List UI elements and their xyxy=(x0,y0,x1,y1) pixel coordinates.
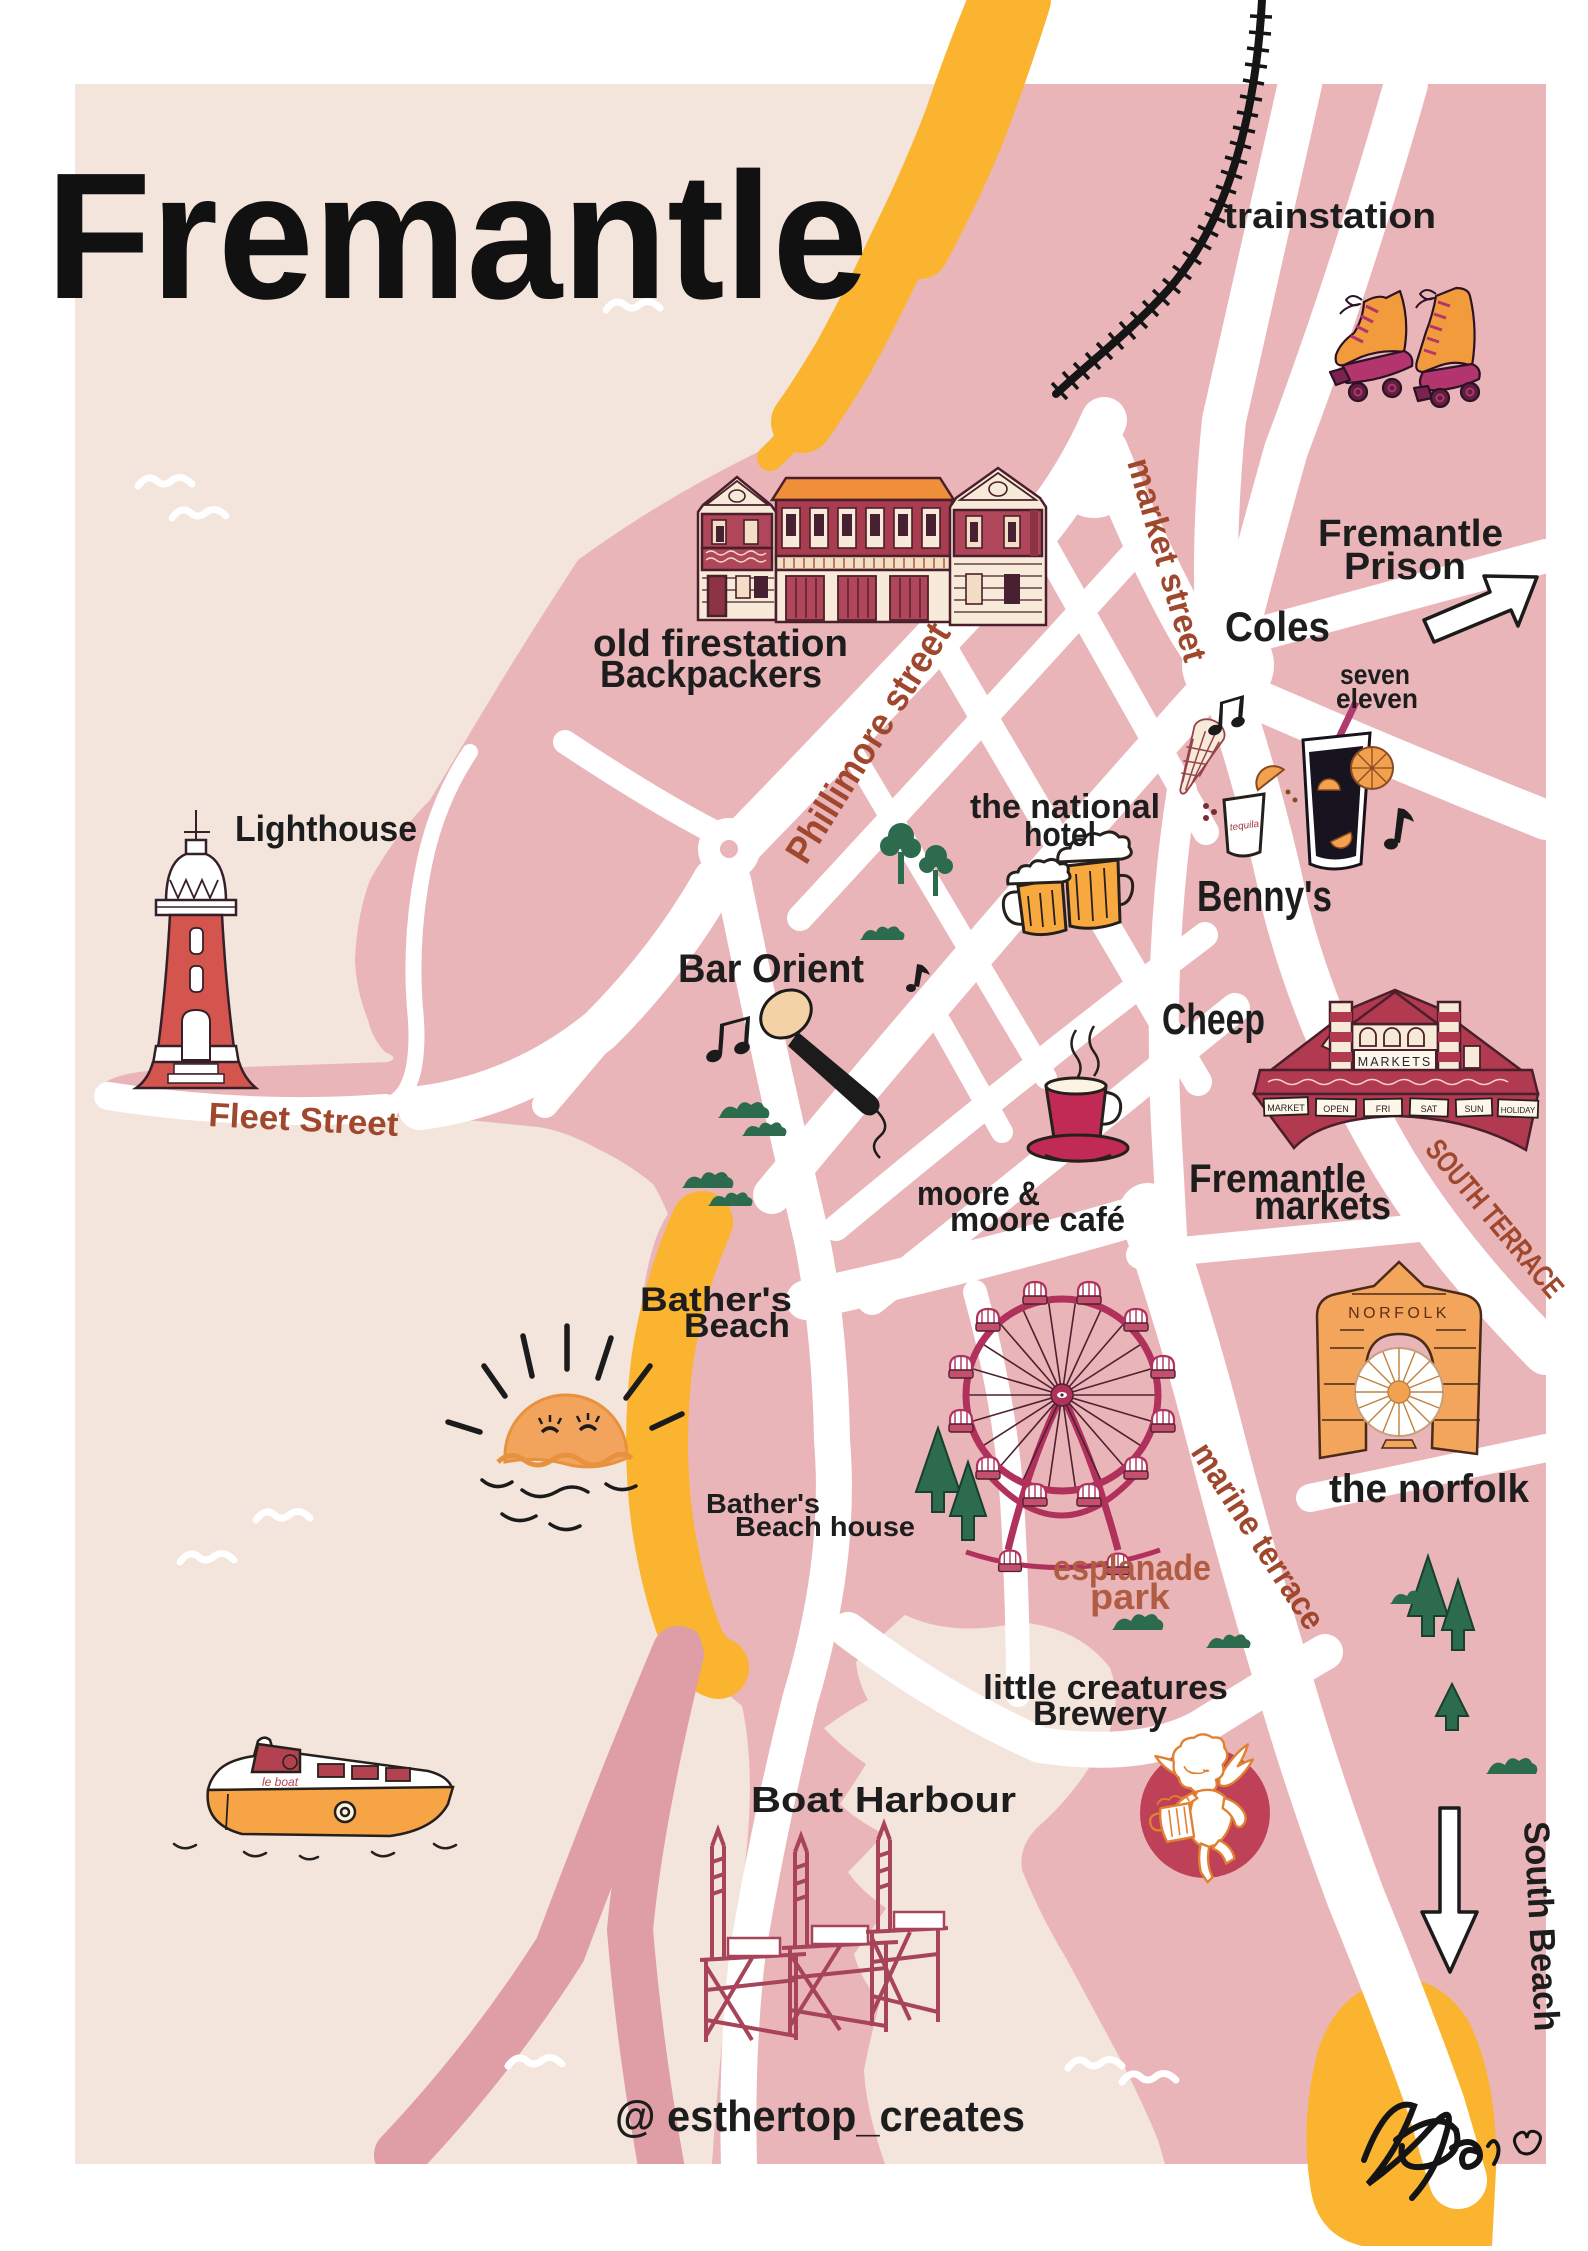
svg-text:Beach: Beach xyxy=(684,1307,790,1345)
svg-text:Lighthouse: Lighthouse xyxy=(235,808,417,849)
svg-text:NORFOLK: NORFOLK xyxy=(1348,1305,1450,1322)
svg-text:Coles: Coles xyxy=(1225,603,1330,650)
svg-text:Boat Harbour: Boat Harbour xyxy=(751,1779,1016,1820)
svg-text:OPEN: OPEN xyxy=(1323,1104,1349,1114)
svg-text:markets: markets xyxy=(1254,1184,1391,1228)
svg-text:Benny's: Benny's xyxy=(1197,872,1332,921)
svg-text:Cheep: Cheep xyxy=(1162,995,1265,1044)
svg-text:Fremantle: Fremantle xyxy=(46,136,868,337)
svg-text:FRI: FRI xyxy=(1376,1104,1391,1114)
svg-text:Backpackers: Backpackers xyxy=(600,654,822,696)
svg-text:le boat: le boat xyxy=(262,1775,299,1789)
svg-text:park: park xyxy=(1090,1576,1171,1617)
svg-text:the norfolk: the norfolk xyxy=(1329,1467,1530,1511)
svg-text:SUN: SUN xyxy=(1464,1104,1483,1114)
svg-text:HOLIDAY: HOLIDAY xyxy=(1501,1106,1536,1115)
svg-text:trainstation: trainstation xyxy=(1224,195,1436,236)
svg-text:Brewery: Brewery xyxy=(1033,1695,1167,1733)
svg-text:SAT: SAT xyxy=(1421,1104,1438,1114)
svg-text:MARKET: MARKET xyxy=(1267,1103,1305,1113)
svg-text:Bar Orient: Bar Orient xyxy=(678,947,864,991)
svg-text:Prison: Prison xyxy=(1344,546,1466,588)
svg-text:Beach house: Beach house xyxy=(735,1511,915,1542)
svg-text:eleven: eleven xyxy=(1336,683,1418,714)
svg-text:moore café: moore café xyxy=(950,1201,1125,1239)
svg-text:@ esthertop_creates: @ esthertop_creates xyxy=(615,2092,1025,2141)
svg-text:hotel: hotel xyxy=(1024,816,1096,854)
svg-text:MARKETS: MARKETS xyxy=(1358,1055,1432,1069)
